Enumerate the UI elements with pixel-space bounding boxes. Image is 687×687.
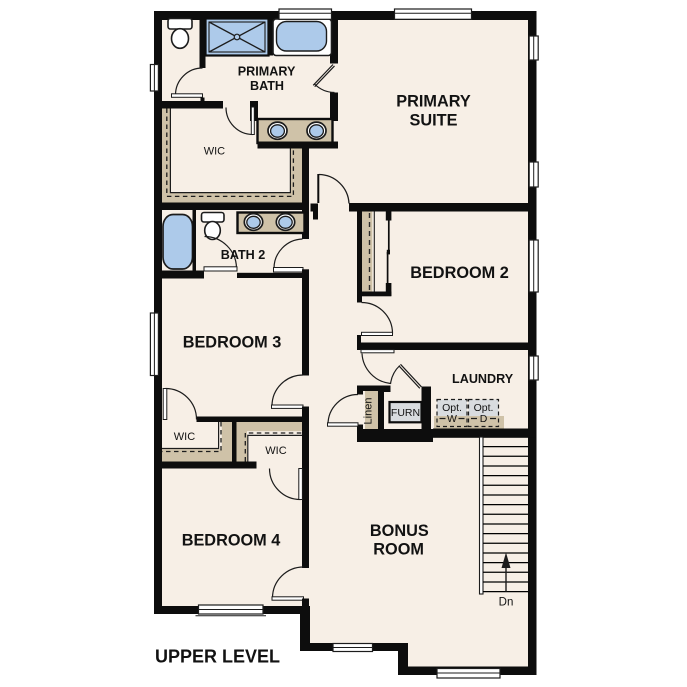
svg-text:WIC: WIC [265,445,286,457]
svg-text:FURN: FURN [391,407,420,419]
svg-text:WIC: WIC [174,431,195,443]
svg-text:BEDROOM 4: BEDROOM 4 [182,532,281,550]
svg-text:PRIMARY: PRIMARY [396,92,471,110]
svg-text:LAUNDRY: LAUNDRY [452,372,514,386]
svg-text:BATH: BATH [250,79,284,93]
svg-text:UPPER LEVEL: UPPER LEVEL [155,647,280,667]
svg-text:ROOM: ROOM [373,541,424,559]
svg-text:WIC: WIC [204,146,225,158]
svg-text:Linen: Linen [363,398,375,425]
svg-text:Dn: Dn [499,597,514,609]
svg-text:PRIMARY: PRIMARY [238,65,296,79]
svg-text:BEDROOM 3: BEDROOM 3 [183,334,282,352]
svg-text:SUITE: SUITE [410,112,458,130]
svg-text:BEDROOM 2: BEDROOM 2 [410,264,509,282]
svg-text:BATH 2: BATH 2 [221,248,266,262]
svg-text:W: W [447,413,457,425]
svg-text:D: D [480,413,488,425]
svg-text:BONUS: BONUS [370,522,429,540]
